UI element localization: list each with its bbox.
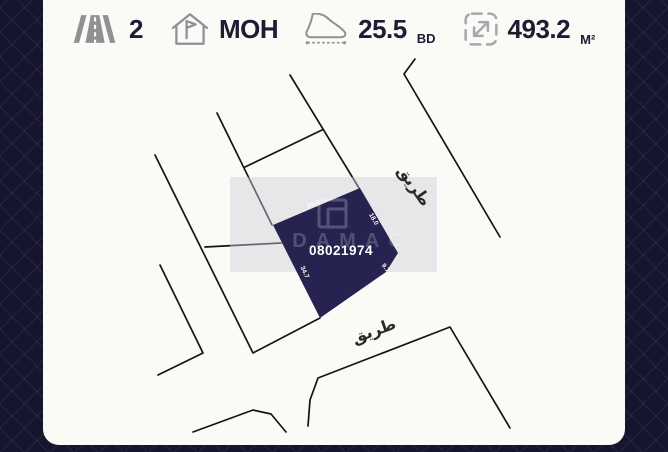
stat-classification-value: MOH — [219, 16, 278, 42]
boundary-line — [193, 410, 286, 432]
stat-area-value: 493.2 — [508, 16, 571, 42]
boundary-line — [308, 327, 510, 428]
stat-roads-value: 2 — [129, 16, 143, 42]
stat-classification: MOH — [170, 12, 278, 46]
listing-stats-header: 2 MOH 25.5 BD — [43, 0, 625, 58]
stat-area: 493.2 M² — [463, 11, 596, 47]
boundary-line — [245, 130, 322, 167]
stat-price-value: 25.5 — [358, 16, 407, 42]
stat-price-unit: BD — [417, 32, 436, 45]
foot-measure-icon — [305, 13, 349, 46]
area-expand-icon — [463, 11, 499, 47]
boundary-line — [290, 75, 359, 188]
page-background: DAMAC 08021974 20.4 18.0 9.7 34.7 14.1 ط… — [0, 0, 668, 452]
house-flag-icon — [170, 12, 210, 46]
road-icon — [68, 13, 120, 45]
road-name-label: طريق — [349, 314, 398, 347]
plot-map: DAMAC 08021974 20.4 18.0 9.7 34.7 14.1 ط… — [0, 0, 668, 452]
stat-area-unit: M² — [580, 33, 595, 46]
stat-roads: 2 — [68, 13, 143, 45]
plot-number: 08021974 — [309, 243, 373, 258]
boundary-line — [158, 265, 203, 375]
stat-price: 25.5 BD — [305, 13, 435, 46]
